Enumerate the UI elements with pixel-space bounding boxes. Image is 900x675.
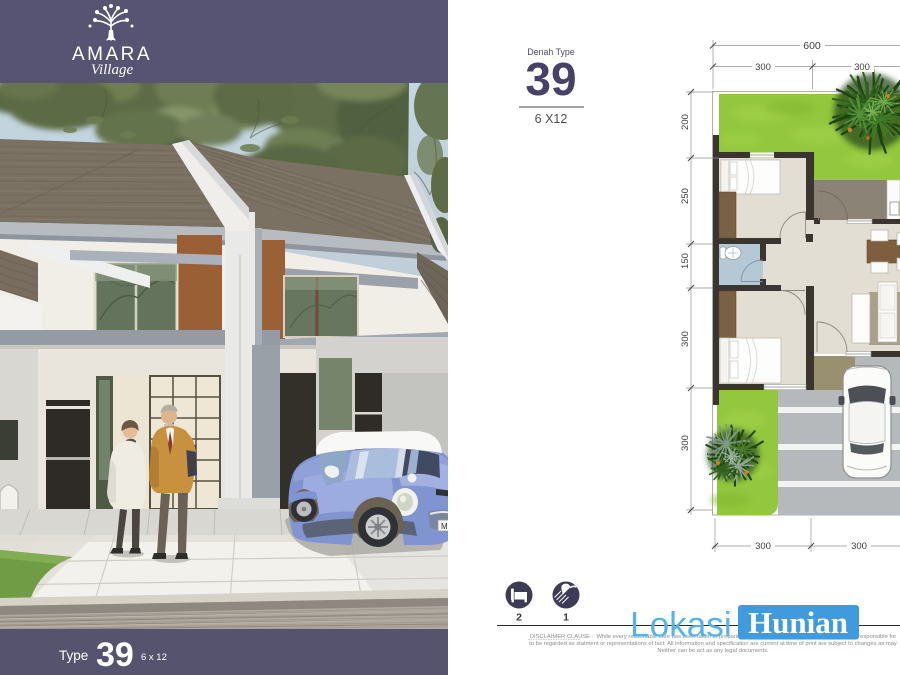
svg-text:M: M <box>441 522 448 531</box>
svg-text:Type: Type <box>59 648 88 663</box>
svg-text:Lokasi: Lokasi <box>630 606 732 645</box>
svg-text:Hunian: Hunian <box>748 605 848 640</box>
svg-text:200: 200 <box>680 114 691 130</box>
svg-text:1: 1 <box>563 612 569 624</box>
svg-text:Neither can be act as any lega: Neither can be act as any legal document… <box>657 648 769 654</box>
svg-text:150: 150 <box>680 253 691 269</box>
svg-text:Village: Village <box>91 62 134 78</box>
svg-text:39: 39 <box>525 53 576 105</box>
svg-text:600: 600 <box>803 40 821 52</box>
svg-text:2: 2 <box>516 612 522 624</box>
svg-text:39: 39 <box>96 636 134 674</box>
svg-text:6 x 12: 6 x 12 <box>141 652 167 663</box>
svg-text:6 X12: 6 X12 <box>535 112 568 126</box>
svg-text:300: 300 <box>755 62 771 73</box>
svg-text:300: 300 <box>680 435 691 451</box>
svg-text:300: 300 <box>851 541 867 552</box>
svg-text:250: 250 <box>680 188 691 204</box>
svg-text:300: 300 <box>854 62 870 73</box>
svg-text:300: 300 <box>680 331 691 347</box>
svg-text:300: 300 <box>755 541 771 552</box>
